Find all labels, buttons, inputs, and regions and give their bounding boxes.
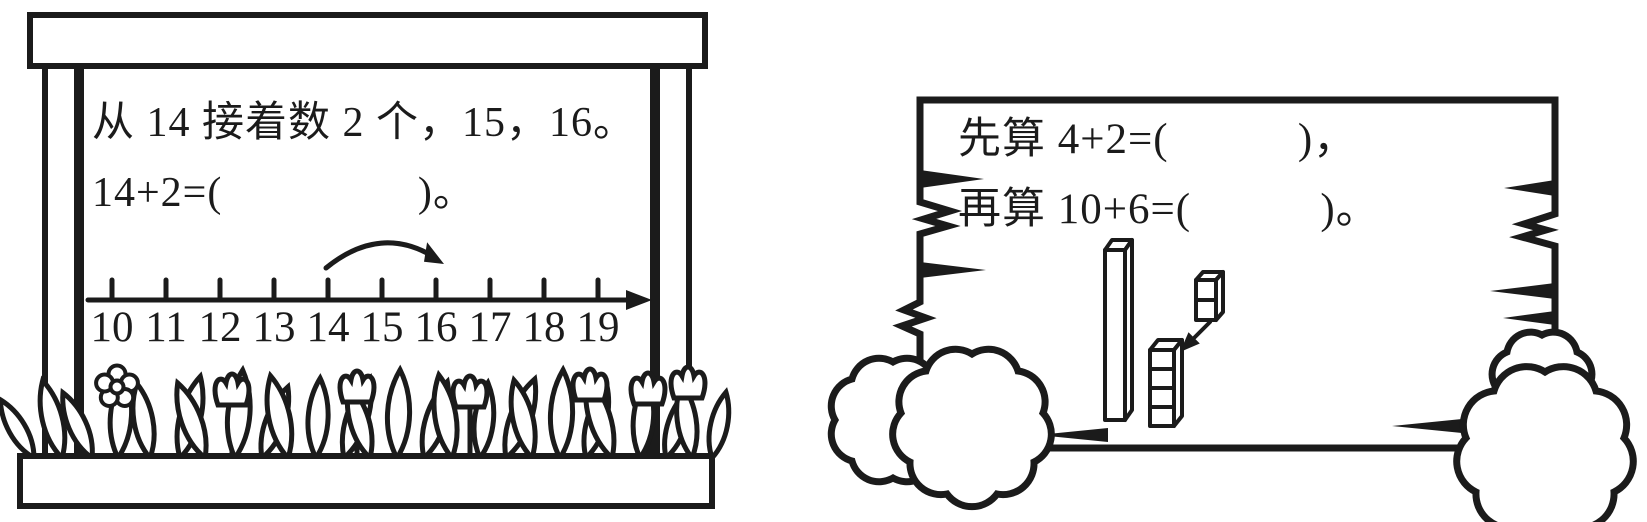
cloud-left-front — [893, 349, 1052, 506]
number-label-11: 11 — [139, 306, 193, 349]
left-panel-line1: 从 14 接着数 2 个，15，16。 — [92, 102, 636, 144]
number-label-10: 10 — [85, 306, 139, 349]
number-label-17: 17 — [463, 306, 517, 349]
right-panel-line2: 再算 10+6=( )。 — [958, 188, 1380, 231]
number-label-13: 13 — [247, 306, 301, 349]
number-label-18: 18 — [517, 306, 571, 349]
worksheet-illustration: 从 14 接着数 2 个，15，16。 14+2=( )。 10 11 12 1… — [0, 0, 1647, 522]
tens-rod — [1105, 240, 1132, 420]
signboard-top-bar — [30, 15, 705, 66]
number-label-19: 19 — [571, 306, 625, 349]
right-wooden-board — [831, 100, 1633, 522]
line-art-canvas — [0, 0, 1647, 522]
number-label-16: 16 — [409, 306, 463, 349]
right-panel-line1: 先算 4+2=( )， — [958, 118, 1357, 161]
number-label-15: 15 — [355, 306, 409, 349]
unit-cubes-2 — [1196, 272, 1223, 320]
left-panel-line2: 14+2=( )。 — [92, 172, 476, 214]
planter-box — [20, 456, 712, 506]
number-label-12: 12 — [193, 306, 247, 349]
left-signboard — [0, 15, 734, 506]
unit-cubes-4 — [1150, 340, 1182, 426]
number-label-14: 14 — [301, 306, 355, 349]
